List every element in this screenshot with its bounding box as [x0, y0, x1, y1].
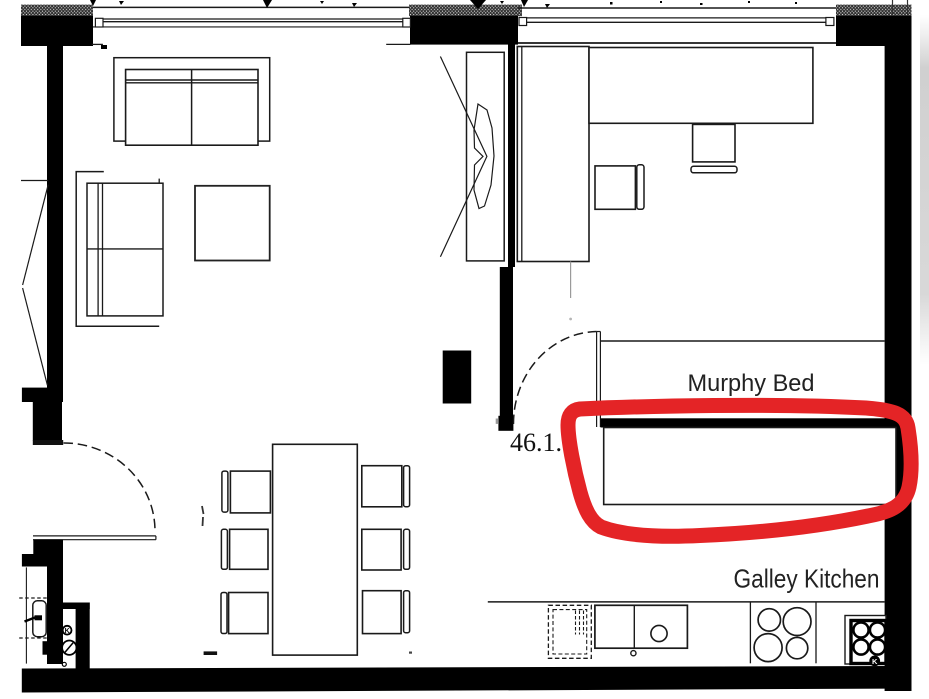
svg-text:K: K: [872, 657, 878, 666]
svg-text:K: K: [65, 628, 70, 635]
svg-text:Murphy Bed: Murphy Bed: [688, 370, 815, 397]
svg-text:Galley Kitchen: Galley Kitchen: [734, 564, 880, 594]
svg-text:46.1.: 46.1.: [510, 428, 562, 457]
